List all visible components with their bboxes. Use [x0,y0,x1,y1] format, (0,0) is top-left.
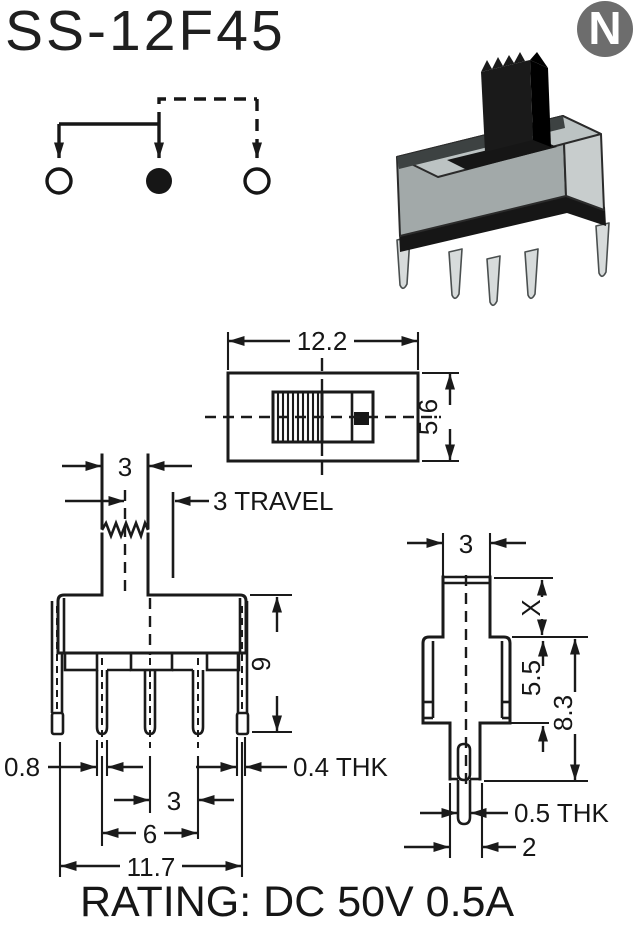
product-photo [397,52,609,305]
technical-drawing: 12.2 5.6 3 3 TRAVEL [0,0,639,938]
side-knob-width-dim: 3 [459,529,473,559]
top-view-height-dim: 5.6 [413,399,443,435]
front-pin-width-dim: 0.8 [4,752,40,782]
front-travel-dim: 3 TRAVEL [213,486,333,516]
side-pin-thk-dim: 0.5 THK [514,798,610,828]
side-body-height-dim: 5.5 [516,660,546,696]
terminal-1 [47,169,71,193]
front-knob-width-dim: 3 [118,452,132,482]
front-height-dim: 9 [246,657,276,671]
photo-knob [481,52,551,152]
rating-text: RATING: DC 50V 0.5A [80,881,514,924]
side-knob-height-dim: X [516,599,546,616]
front-pin-pitch-dim: 3 [167,786,181,816]
front-view: 3 3 TRAVEL [4,452,389,882]
circuit-diagram [47,99,269,194]
datasheet-page: SS-12F45 N [0,0,639,938]
side-base-width-dim: 2 [522,832,536,862]
top-view-width-dim: 12.2 [297,326,348,356]
common-terminal [146,168,172,194]
terminal-2 [245,169,269,193]
front-bracket-thk-dim: 0.4 THK [293,752,389,782]
side-total-height-dim: 8.3 [548,695,578,731]
top-view: 12.2 5.6 [205,326,459,475]
front-pin-span-dim: 6 [143,819,157,849]
side-view: 3 X 5. [404,529,610,862]
